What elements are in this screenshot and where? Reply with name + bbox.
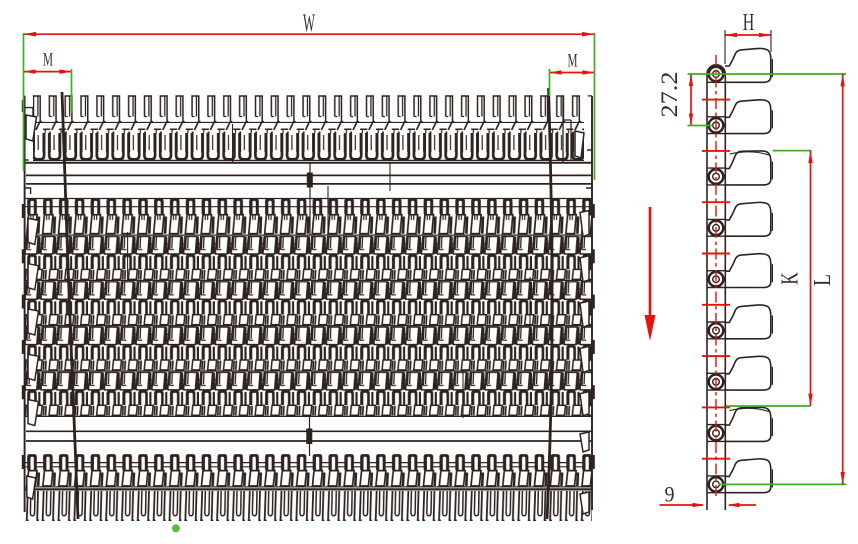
- svg-text:M: M: [43, 51, 53, 71]
- svg-text:K: K: [778, 272, 804, 285]
- svg-text:L: L: [810, 274, 836, 286]
- svg-text:M: M: [568, 52, 578, 72]
- svg-text:9: 9: [665, 482, 675, 507]
- svg-text:H: H: [743, 10, 755, 36]
- svg-text:27.2: 27.2: [657, 72, 682, 118]
- svg-text:W: W: [303, 10, 315, 37]
